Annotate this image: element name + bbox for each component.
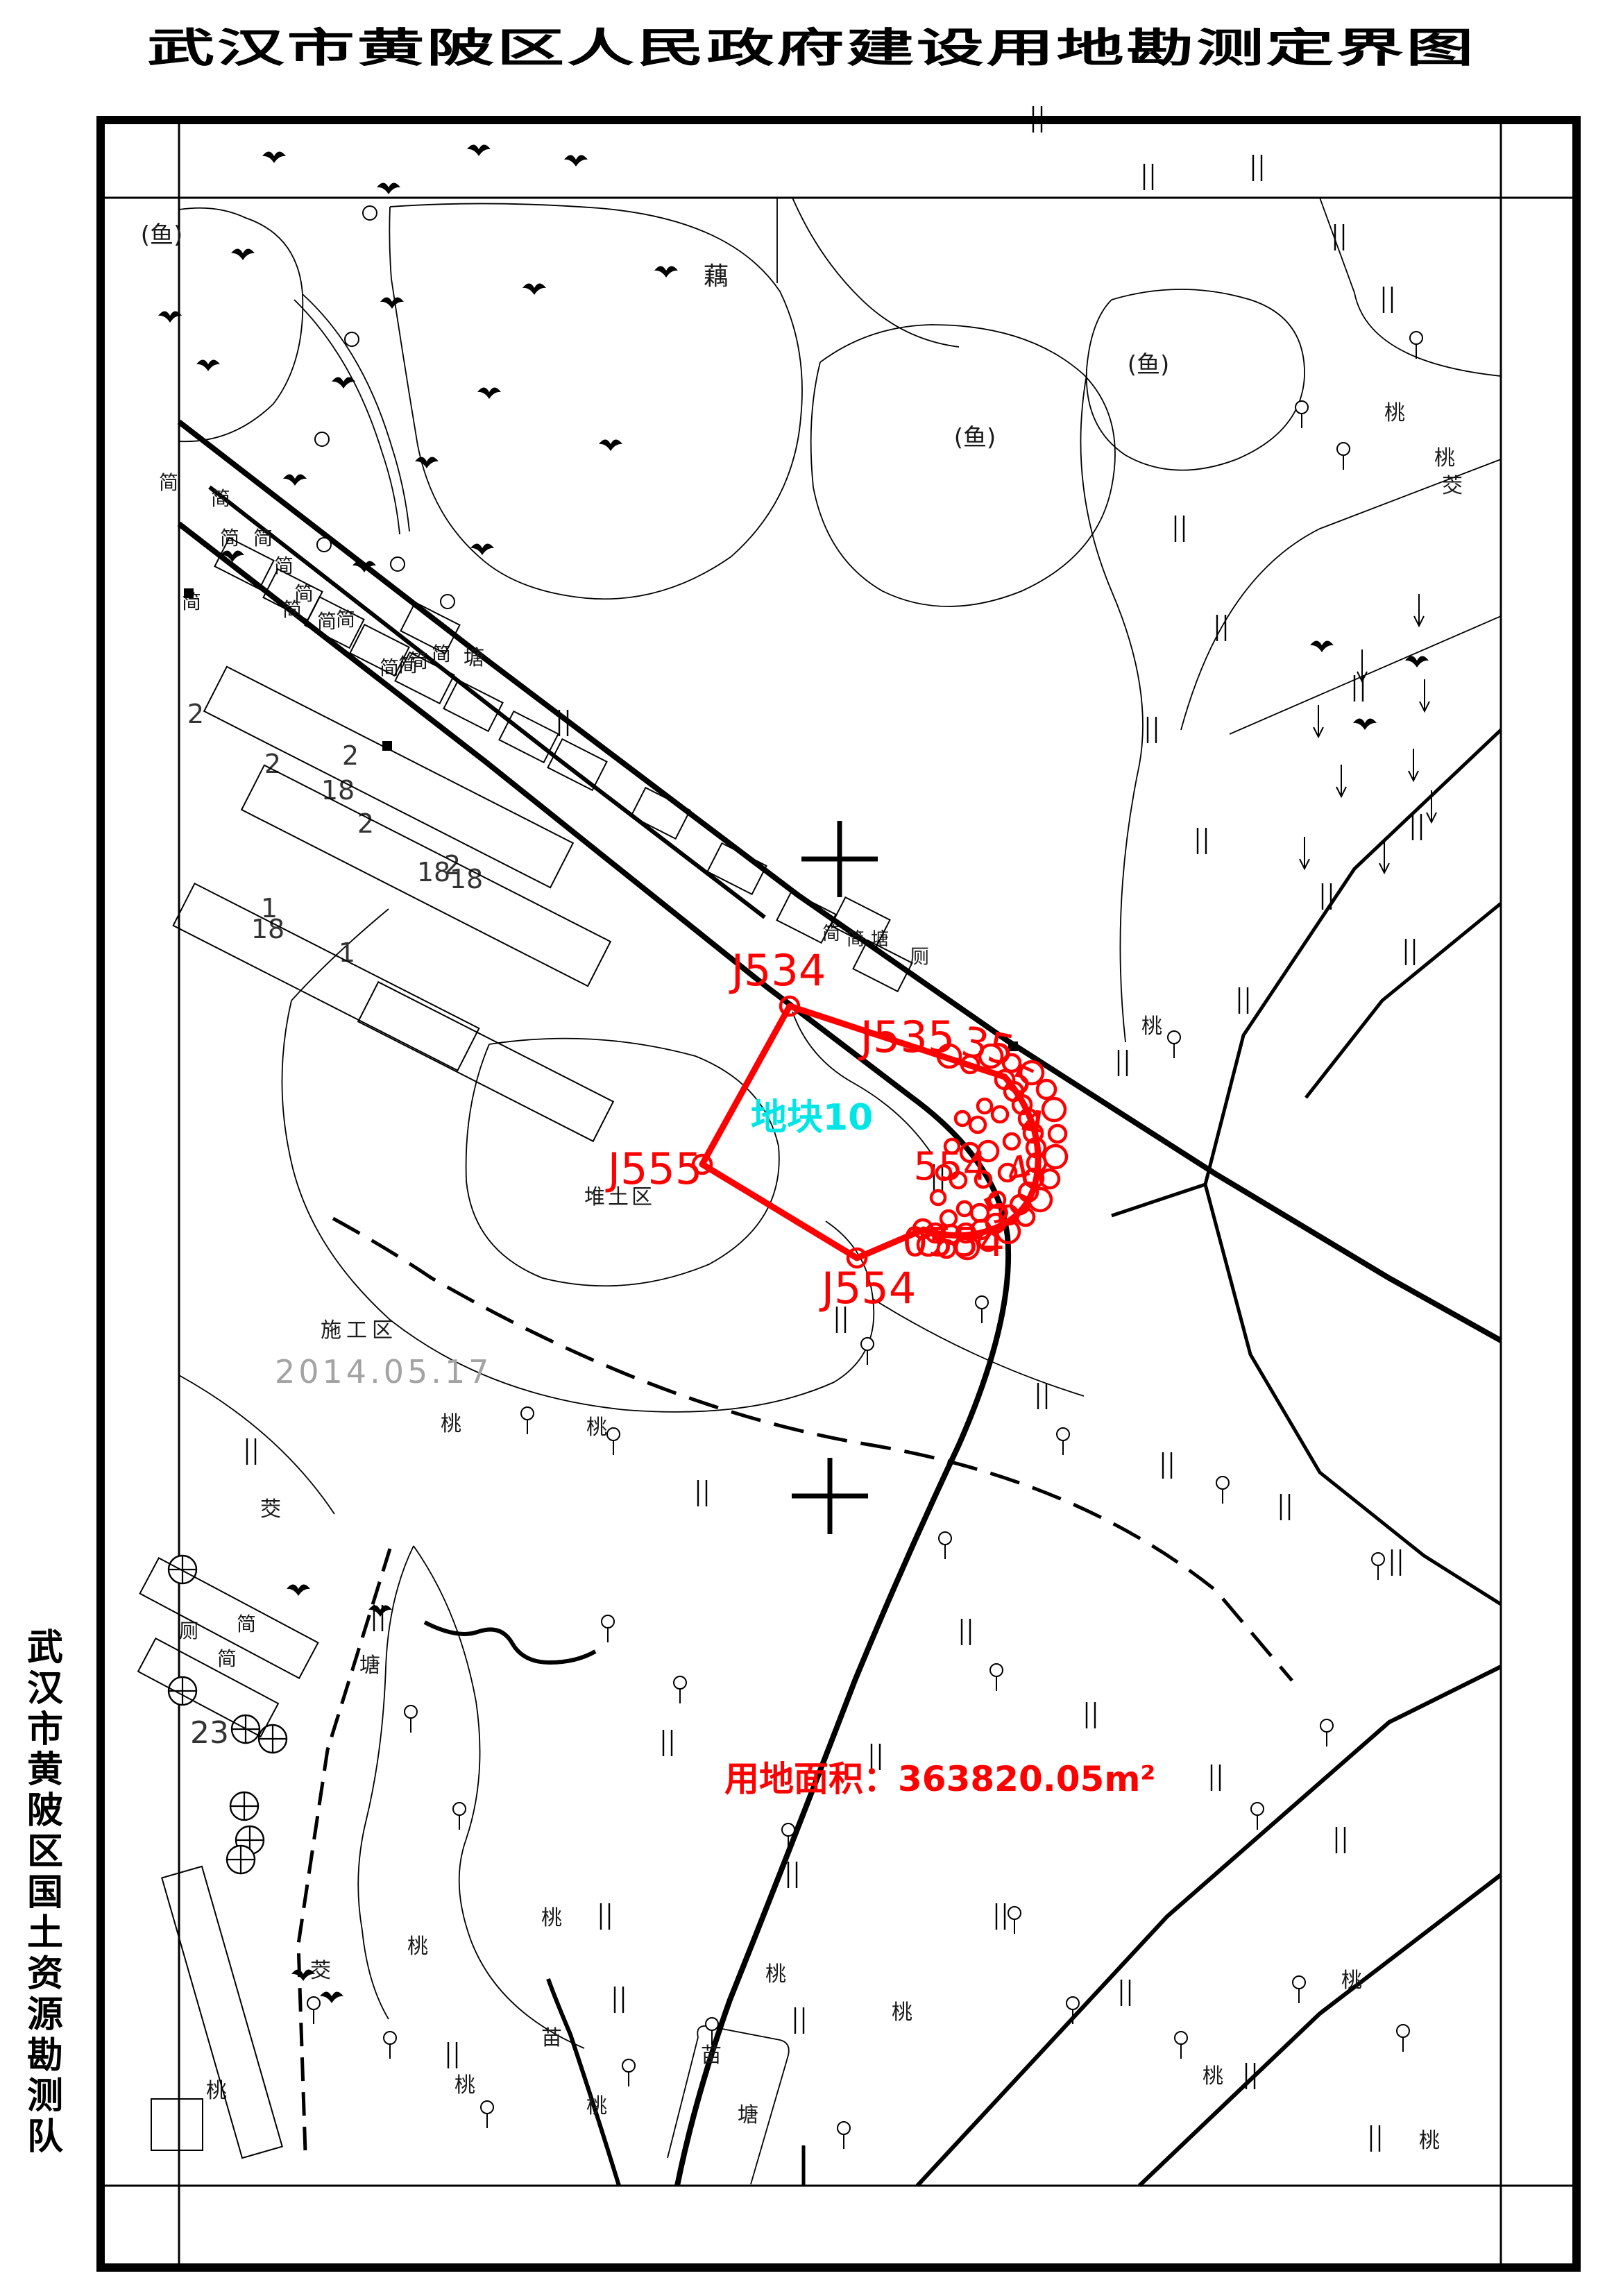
marsh-swallow-symbol (283, 475, 307, 486)
tree-symbol (1337, 443, 1350, 455)
tree-symbol (674, 1676, 686, 1689)
pond-outline (811, 325, 1115, 606)
map-label: 塘 (359, 1653, 380, 1678)
secondary-road (210, 487, 765, 917)
path-circle-symbol (391, 557, 405, 571)
tree-symbol (1295, 401, 1308, 414)
map-label: 桃 (1384, 401, 1405, 425)
marsh-swallow-symbol (377, 183, 400, 195)
map-label: 桃 (407, 1934, 428, 1959)
tree-symbol (1397, 2025, 1409, 2037)
creek-line (425, 1622, 595, 1663)
map-label: 简 (380, 656, 399, 679)
map-label: 2 (187, 699, 204, 729)
survey-date-label: 2014.05.17 (275, 1353, 492, 1391)
marsh-swallow-symbol (380, 298, 404, 309)
map-label: 桃 (441, 1412, 461, 1436)
map-label: (鱼) (954, 424, 996, 452)
field-boundary (1306, 903, 1501, 1098)
map-label: 厕 (910, 945, 929, 968)
map-label: 2 (357, 808, 374, 839)
tree-symbol (1175, 2032, 1187, 2044)
shed-outline (707, 843, 766, 894)
map-label: 桃 (765, 1962, 786, 1987)
map-label: (鱼) (1128, 351, 1170, 379)
tree-symbol (1008, 1907, 1021, 1919)
field-boundary (1205, 730, 1501, 1604)
map-label: 藕 (704, 262, 729, 291)
shed-outline (443, 680, 502, 731)
map-label: 茭 (260, 1497, 281, 1522)
marsh-outline (389, 207, 479, 556)
survey-point-label: J534 (729, 945, 826, 996)
map-label: 桃 (206, 2079, 227, 2103)
building-outline (358, 982, 613, 1141)
marsh-swallow-symbol (1405, 656, 1429, 668)
map-label: 简 (432, 643, 451, 665)
pond-outline (1087, 289, 1305, 470)
map-label: 桃 (1341, 1968, 1362, 1993)
tree-symbol (939, 1532, 951, 1545)
tree-symbol (706, 2018, 718, 2030)
tree-symbol (1293, 1976, 1305, 1989)
marsh-swallow-symbol (654, 266, 678, 278)
construction-zone-label: 施工区 (321, 1313, 398, 1343)
tree-symbol (481, 2101, 493, 2114)
tree-symbol (1251, 1803, 1264, 1815)
map-label: 18 (251, 914, 284, 944)
map-label: 桃 (1434, 446, 1455, 470)
parcel-line (1080, 375, 1143, 1042)
marsh-swallow-symbol (477, 388, 501, 400)
survey-point-cluster-circle (958, 1202, 971, 1216)
marsh-swallow-symbol (320, 1992, 343, 2004)
shed-outline (631, 788, 690, 839)
path-circle-symbol (363, 206, 377, 220)
terrain-lines (179, 198, 1501, 2184)
cluster-label-fragment: J535 (858, 1012, 955, 1062)
marsh-swallow-symbol (332, 377, 355, 389)
survey-point-cluster-circle (1004, 1134, 1019, 1149)
map-label: 简 (282, 598, 302, 621)
tree-symbol (976, 1296, 988, 1309)
survey-map-canvas: (鱼)(鱼)(鱼)藕塘塘塘塘简简简简简简简简简简简简简简简简简简厕厕桃桃桃桃桃桃… (0, 0, 1623, 2296)
survey-point-cluster-circle (931, 1191, 945, 1205)
map-label: 茭 (310, 1959, 331, 1983)
marsh-outline (390, 203, 802, 599)
marsh-swallow-symbol (231, 249, 255, 261)
tree-symbol (861, 1338, 874, 1350)
tree-symbol (990, 1664, 1003, 1676)
map-label: 简 (847, 929, 865, 950)
pond-outline (358, 1546, 414, 2019)
tree-symbol (607, 1428, 620, 1440)
marsh-swallow-symbol (262, 152, 286, 164)
survey-point-cluster-circle (992, 1107, 1008, 1122)
map-label: 桃 (1141, 1014, 1162, 1039)
map-label: 桃 (586, 2094, 607, 2118)
cluster-label-fragment: 0554 (902, 1218, 1005, 1266)
marsh-swallow-symbol (1353, 719, 1377, 731)
building-outline (173, 883, 479, 1070)
pond-outline (668, 2037, 698, 2158)
land-area-label: 用地面积：363820.05m² (724, 1751, 1155, 1801)
map-label: (鱼) (141, 221, 183, 249)
map-label: 简 (253, 527, 273, 550)
building-outline (151, 2099, 203, 2150)
map-label: 茭 (1442, 474, 1463, 498)
field-boundary (548, 1979, 619, 2186)
survey-point-cluster-circle (970, 1117, 985, 1132)
map-label: 桃 (541, 1906, 562, 1930)
map-label: 桃 (586, 1415, 607, 1440)
path-circle-symbol (315, 432, 329, 446)
parcel-line (1320, 198, 1501, 376)
map-label: 塘 (738, 2103, 758, 2127)
marsh-swallow-symbol (470, 544, 494, 556)
map-label: 简 (336, 608, 355, 631)
tree-symbol (1372, 1553, 1384, 1565)
tree-symbol (521, 1407, 534, 1420)
survey-point-label: J554 (819, 1263, 917, 1313)
building-dot (184, 588, 194, 598)
marsh-swallow-symbol (196, 360, 220, 372)
tree-symbol (307, 1997, 320, 2009)
map-label: 简 (159, 471, 178, 494)
map-label: 2 (264, 749, 281, 779)
tree-symbol (602, 1615, 614, 1628)
map-label: 桃 (1419, 2129, 1440, 2153)
map-label: 简 (274, 554, 294, 577)
pond-outline (179, 208, 303, 442)
marsh-swallow-symbol (522, 284, 546, 296)
plot-name-label: 地块10 (751, 1088, 873, 1140)
survey-point-cluster-circle (1037, 1080, 1055, 1098)
map-label: 桃 (892, 2000, 912, 2025)
map-label: 苗 (541, 2026, 562, 2050)
map-label: 简 (211, 487, 230, 510)
field-boundary (1139, 1875, 1501, 2186)
survey-point-cluster-circle (978, 1099, 992, 1113)
tree-symbol (1057, 1428, 1069, 1440)
survey-point-cluster-circle (1049, 1125, 1066, 1142)
map-label: 23 (190, 1715, 229, 1751)
tree-symbol (838, 2122, 850, 2134)
stockpile-zone-label: 堆土区 (584, 1180, 655, 1210)
map-label: 塘 (464, 646, 484, 670)
pond-outline (414, 1546, 584, 2048)
building-outline (204, 667, 573, 887)
marsh-swallow-symbol (415, 457, 439, 469)
tree-symbol (782, 1823, 794, 1836)
map-label: 桃 (1203, 2064, 1223, 2089)
path-circle-symbol (441, 595, 454, 609)
tree-symbol (1216, 1477, 1229, 1489)
map-label: 苗 (701, 2043, 722, 2068)
marsh-swallow-symbol (564, 155, 588, 167)
path-circle-symbol (317, 538, 331, 552)
tree-symbol (405, 1706, 417, 1718)
map-label: 2 (342, 740, 359, 771)
marsh-swallow-symbol (599, 440, 622, 452)
survey-point-cluster-circle (1044, 1146, 1067, 1168)
cluster-label-fragment: 554 (914, 1144, 988, 1189)
tree-symbol (384, 2032, 396, 2044)
construction-area-outline (282, 1001, 874, 1412)
tree-symbol (1168, 1031, 1180, 1044)
tree-symbol (1410, 332, 1422, 344)
dashed-boundary (333, 1218, 1292, 1681)
map-label: 简 (237, 1613, 256, 1635)
tree-symbol (453, 1803, 466, 1815)
contour-line (179, 1375, 334, 1514)
map-label: 简 (317, 610, 337, 633)
contour-line (873, 1299, 1084, 1396)
parcel-line (1181, 459, 1501, 730)
survey-point-cluster-circle (955, 1112, 969, 1125)
marsh-swallow-symbol (368, 1606, 392, 1617)
path-circle-symbol (345, 332, 359, 346)
tree-symbol (1320, 1719, 1333, 1732)
tree-symbol (622, 2059, 635, 2072)
field-boundary (1112, 1184, 1205, 1216)
marsh-swallow-symbol (287, 1585, 310, 1597)
marsh-swallow-symbol (467, 145, 491, 157)
survey-map-sheet: 武汉市黄陂区人民政府建设用地勘测定界图 武汉市黄陂区国土资源勘测队 (0, 0, 1623, 2296)
map-label: 桃 (454, 2073, 475, 2098)
map-label: 简 (217, 1647, 237, 1670)
tree-symbol (1067, 1997, 1079, 2009)
marsh-swallow-symbol (1310, 641, 1334, 653)
